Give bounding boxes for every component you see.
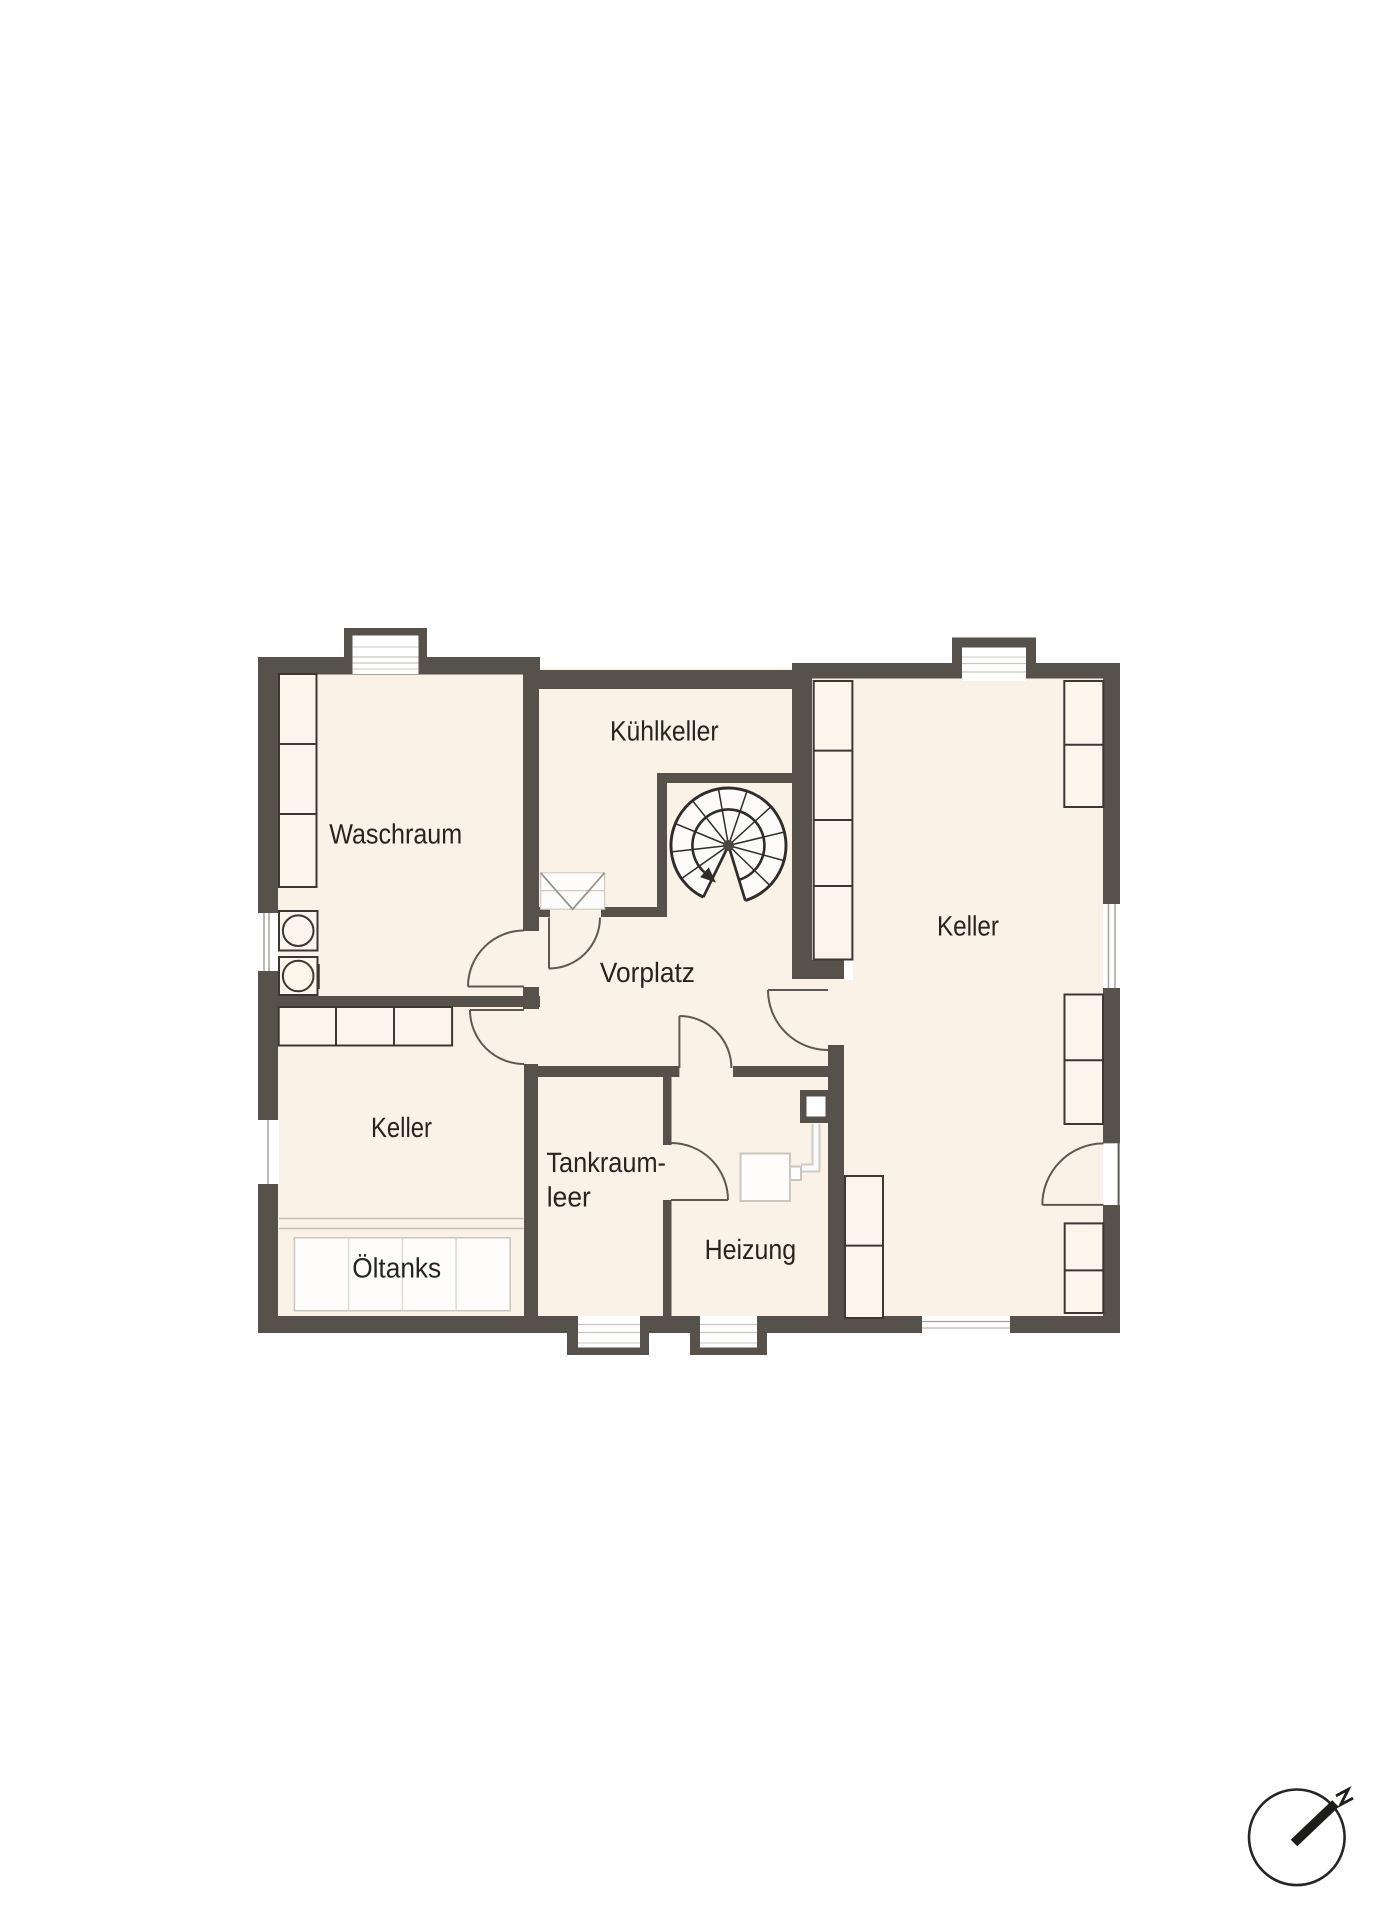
svg-text:Kühlkeller: Kühlkeller	[610, 716, 719, 747]
svg-text:Keller: Keller	[371, 1112, 432, 1143]
svg-text:Heizung: Heizung	[705, 1234, 797, 1265]
svg-text:Tankraum-: Tankraum-	[546, 1147, 666, 1178]
svg-text:Vorplatz: Vorplatz	[600, 957, 695, 988]
svg-text:leer: leer	[547, 1181, 591, 1212]
svg-text:Keller: Keller	[937, 910, 999, 941]
svg-text:Öltanks: Öltanks	[352, 1253, 441, 1284]
svg-text:Waschraum: Waschraum	[329, 819, 462, 850]
